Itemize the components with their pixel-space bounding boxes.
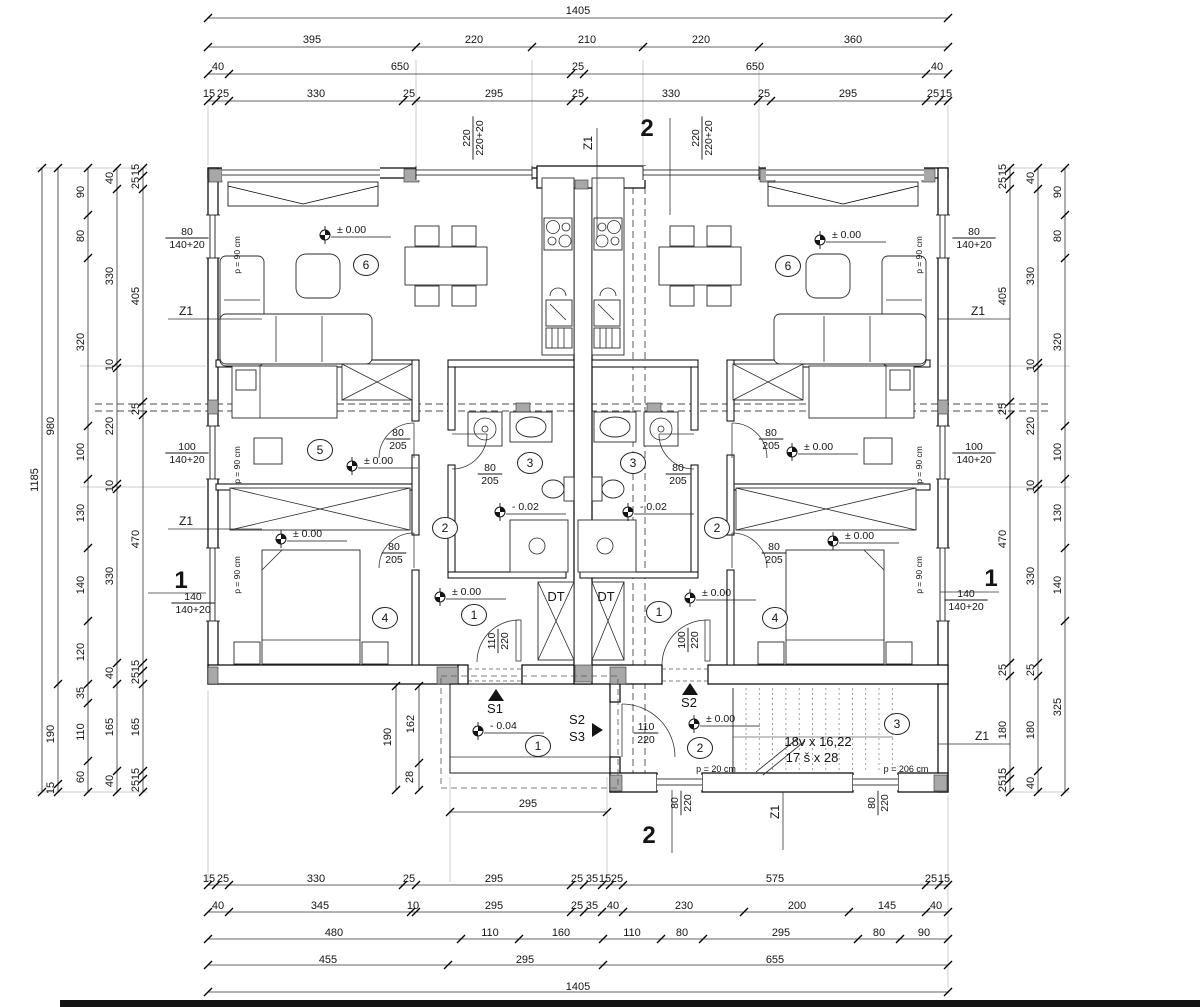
- bed-room4-right: [758, 550, 912, 664]
- bed-room5-right: [809, 366, 914, 418]
- dimension-value: 90: [1052, 186, 1064, 198]
- drawing-primitive: [657, 775, 702, 790]
- dimension-value: 25: [927, 88, 939, 100]
- wardrobe-room4-right: [736, 488, 916, 530]
- annotation-label: p = 90 cm: [914, 556, 924, 594]
- party-wall: [574, 168, 592, 684]
- dimension-value: 330: [104, 567, 116, 585]
- drawing-primitive: [685, 598, 690, 603]
- drawing-primitive: [580, 572, 698, 578]
- desk-room5-left: [254, 438, 282, 464]
- size-fraction-label: 80205: [762, 541, 787, 566]
- dimension-value: 40: [931, 61, 943, 73]
- drawing-primitive: [774, 314, 926, 364]
- dining-table-left: [405, 226, 487, 306]
- drawing-primitive: [689, 724, 694, 729]
- drawing-primitive: [768, 182, 918, 206]
- drawing-primitive: 205: [669, 475, 687, 487]
- dimension-value: 320: [75, 333, 87, 351]
- drawing-primitive: [705, 620, 710, 661]
- annotation-label: p = 90 cm: [914, 446, 924, 484]
- terrace-door-right: [766, 166, 924, 206]
- dimension-value: 60: [75, 771, 87, 783]
- drawing-primitive: ± 0.00: [832, 229, 861, 241]
- dimension-value: 325: [1052, 698, 1064, 716]
- drawing-primitive: [768, 186, 918, 204]
- dimension-value: 25: [130, 403, 142, 415]
- dimension-value: 980: [45, 417, 57, 435]
- window-left-100: [206, 426, 220, 479]
- drawing-primitive: [468, 412, 502, 446]
- drawing-primitive: 140+20: [956, 454, 991, 466]
- drawing-primitive: 2: [714, 521, 721, 535]
- dimension-value: 15: [130, 768, 142, 780]
- drawing-primitive: 80: [765, 427, 777, 439]
- dining-table-right: [659, 226, 741, 306]
- annotation-label: Z1: [971, 304, 985, 318]
- dimension-value: 25: [1025, 664, 1037, 676]
- size-fraction-label: 80205: [386, 427, 411, 452]
- drawing-primitive: [936, 215, 950, 258]
- coffee-table-left: [296, 254, 340, 298]
- drawing-primitive: 4: [382, 611, 389, 625]
- dimension-value: 160: [552, 927, 570, 939]
- drawing-primitive: [938, 168, 948, 792]
- drawing-primitive: [806, 254, 850, 298]
- drawing-primitive: 6: [785, 259, 792, 273]
- dimension-value: 10: [104, 480, 116, 492]
- dimension-value: 405: [130, 287, 142, 305]
- dimension-value: 90: [918, 927, 930, 939]
- drawing-primitive: [833, 536, 838, 541]
- size-fraction-label: 80140+20: [165, 226, 208, 251]
- dimension-value: 28: [404, 771, 416, 783]
- annotation-label: S1: [487, 701, 503, 716]
- room-number-marker: 4: [373, 608, 398, 629]
- dimension-value: 165: [130, 718, 142, 736]
- dimension-value: 25: [572, 61, 584, 73]
- dimension-value: 1405: [566, 5, 590, 17]
- room-number-marker: 1: [462, 605, 487, 626]
- drawing-primitive: ± 0.00: [804, 441, 833, 453]
- drawing-primitive: [362, 642, 388, 664]
- size-fraction-label: 100140+20: [952, 441, 995, 466]
- dimension-value: 220: [465, 34, 483, 46]
- dimension-value: 40: [104, 667, 116, 679]
- level-marker: ± 0.00: [815, 229, 886, 249]
- drawing-primitive: ± 0.00: [337, 224, 366, 236]
- door-room4-right: [732, 533, 767, 568]
- drawing-primitive: 6: [363, 258, 370, 272]
- porch-left: [441, 676, 618, 788]
- annotation-label: DT: [597, 589, 614, 604]
- drawing-primitive: [938, 400, 948, 414]
- drawing-primitive: 80: [866, 797, 878, 809]
- dimension-value: 10: [1025, 359, 1037, 371]
- dimension-value: 470: [997, 530, 1009, 548]
- dimension-value: 35: [75, 687, 87, 699]
- dimension-value: 80: [676, 927, 688, 939]
- drawing-primitive: [222, 166, 380, 180]
- dimension-value: 650: [391, 61, 409, 73]
- drawing-primitive: [644, 412, 678, 446]
- drawing-primitive: [643, 166, 759, 180]
- drawing-primitive: [853, 775, 898, 790]
- size-fraction-label: 100140+20: [165, 441, 208, 466]
- dimension-value: 90: [75, 186, 87, 198]
- drawing-primitive: [448, 572, 566, 578]
- dimension-value: 15: [997, 768, 1009, 780]
- drawing-primitive: [670, 286, 694, 306]
- drawing-primitive: [578, 520, 636, 572]
- bed-room5-left: [232, 366, 337, 418]
- drawing-primitive: [707, 286, 731, 306]
- room-number-marker: 3: [885, 714, 910, 735]
- drawing-primitive: [452, 286, 476, 306]
- level-marker: ± 0.00: [276, 528, 347, 548]
- dimension-value: 130: [75, 504, 87, 522]
- dimension-value: 110: [481, 927, 499, 939]
- dimension-value: 15: [203, 873, 215, 885]
- drawing-primitive: [610, 775, 622, 791]
- drawing-primitive: [473, 731, 478, 736]
- bathroom-right: [578, 412, 678, 572]
- dimension-value: 110: [623, 927, 641, 939]
- dimension-value: 650: [746, 61, 764, 73]
- dimension-value: 15: [997, 164, 1009, 176]
- dimension-value: 15: [203, 88, 215, 100]
- annotation-label: p = 206 cm: [884, 764, 929, 774]
- drawing-primitive: [452, 226, 476, 246]
- dimension-value: 40: [104, 775, 116, 787]
- annotation-label: p = 20 cm: [696, 764, 736, 774]
- drawing-primitive: [208, 400, 218, 414]
- entrance-arrow: [592, 723, 603, 737]
- dimension-value: 25: [572, 88, 584, 100]
- drawing-primitive: [448, 367, 455, 430]
- dimension-value: 25: [997, 780, 1009, 792]
- drawing-primitive: - 0.02: [640, 501, 667, 513]
- size-fraction-label: 80205: [759, 427, 784, 452]
- drawing-primitive: [437, 667, 458, 684]
- dimension-value: 100: [1052, 443, 1064, 461]
- room-number-marker: 6: [354, 255, 379, 276]
- drawing-primitive: 80: [392, 427, 404, 439]
- drawing-primitive: [594, 328, 620, 348]
- dimension-value: 25: [571, 900, 583, 912]
- dimension-value: 330: [307, 873, 325, 885]
- drawing-primitive: - 0.02: [512, 501, 539, 513]
- drawing-primitive: 2: [442, 521, 449, 535]
- dimension-value: 25: [997, 664, 1009, 676]
- size-fraction-label: 80220: [669, 791, 694, 816]
- level-marker: ± 0.00: [689, 713, 760, 733]
- dimension-value: 25: [217, 88, 229, 100]
- room-number-marker: 3: [518, 453, 543, 474]
- size-fraction-label: 110220: [634, 721, 659, 746]
- dimension-value: 80: [873, 927, 885, 939]
- drawing-primitive: [254, 438, 282, 464]
- dimension-value: 25: [611, 873, 623, 885]
- drawing-primitive: [890, 370, 910, 390]
- drawing-primitive: [936, 426, 950, 479]
- drawing-primitive: [691, 465, 698, 572]
- dimension-value: 345: [311, 900, 329, 912]
- dimension-value: 145: [878, 900, 896, 912]
- annotation-label: p = 90 cm: [232, 236, 242, 274]
- drawing-primitive: [206, 426, 220, 479]
- drawing-primitive: [516, 417, 546, 437]
- drawing-primitive: [815, 240, 820, 245]
- drawing-primitive: [510, 520, 568, 572]
- dimension-value: 25: [130, 780, 142, 792]
- drawing-primitive: ± 0.00: [452, 586, 481, 598]
- drawing-primitive: - 0.04: [490, 720, 517, 732]
- room-number-marker: 1: [526, 736, 551, 757]
- drawing-primitive: [325, 230, 330, 235]
- dimension-value: 25: [403, 88, 415, 100]
- room-number-marker: 2: [688, 738, 713, 759]
- dimension-value: 25: [403, 873, 415, 885]
- drawing-primitive: ± 0.00: [364, 455, 393, 467]
- drawing-primitive: 220: [690, 129, 702, 147]
- annotation-label: p = 90 cm: [232, 556, 242, 594]
- dimension-value: 130: [1052, 504, 1064, 522]
- drawing-primitive: [478, 726, 483, 731]
- dimension-value: 40: [1025, 777, 1037, 789]
- dimension-value: 40: [212, 900, 224, 912]
- dimension-value: 330: [662, 88, 680, 100]
- drawing-primitive: 80: [968, 226, 980, 238]
- dimension-value: 295: [485, 873, 503, 885]
- size-fraction-label: 80205: [478, 462, 503, 487]
- kitchen-left: [542, 178, 574, 355]
- drawing-primitive: [670, 226, 694, 246]
- floor-plan-drawing: 1405395220210220360406502565040152533025…: [0, 0, 1200, 1007]
- drawing-primitive: 2: [697, 741, 704, 755]
- drawing-primitive: ± 0.00: [845, 530, 874, 542]
- drawing-primitive: [691, 367, 698, 430]
- level-marker: ± 0.00: [320, 224, 391, 244]
- drawing-primitive: [209, 169, 222, 182]
- window-right-80: [936, 215, 950, 258]
- size-fraction-label: 80205: [382, 541, 407, 566]
- drawing-primitive: 100: [676, 631, 688, 649]
- drawing-primitive: [828, 541, 833, 546]
- drawing-primitive: [347, 466, 352, 471]
- dimension-value: 15: [599, 873, 611, 885]
- drawing-primitive: [220, 314, 372, 364]
- annotation-label: 2: [640, 115, 653, 142]
- annotation-label: 17 š x 28: [786, 750, 839, 765]
- dimension-value: 180: [997, 721, 1009, 739]
- dimension-value: 40: [212, 61, 224, 73]
- dimension-value: 330: [1025, 267, 1037, 285]
- drawing-primitive: [281, 534, 286, 539]
- dimension-value: 220: [1025, 417, 1037, 435]
- dimension-value: 190: [382, 728, 394, 746]
- drawing-primitive: [276, 539, 281, 544]
- drawing-primitive: [707, 226, 731, 246]
- desk-room5-right: [864, 438, 892, 464]
- dimension-value: 575: [766, 873, 784, 885]
- drawing-primitive: ± 0.00: [702, 587, 731, 599]
- dimension-value: 190: [45, 725, 57, 743]
- drawing-primitive: [732, 533, 767, 568]
- drawing-primitive: [405, 247, 487, 285]
- drawing-primitive: 205: [481, 475, 499, 487]
- dimension-value: 330: [1025, 567, 1037, 585]
- drawing-primitive: [602, 480, 624, 498]
- drawing-primitive: ± 0.00: [293, 528, 322, 540]
- level-marker: ± 0.00: [685, 587, 756, 607]
- wardrobe-room4-left: [230, 488, 410, 530]
- drawing-primitive: [564, 477, 574, 501]
- drawing-primitive: [694, 719, 699, 724]
- size-fraction-label: 80205: [666, 462, 691, 487]
- dimension-value: 110: [75, 723, 87, 741]
- drawing-primitive: [441, 676, 618, 788]
- drawing-primitive: 4: [772, 611, 779, 625]
- drawing-primitive: [208, 667, 218, 684]
- annotation-label: S3: [569, 729, 585, 744]
- dimension-value: 165: [104, 718, 116, 736]
- dimension-value: 455: [319, 954, 337, 966]
- room-number-marker: 2: [705, 518, 730, 539]
- drawing-primitive: [435, 597, 440, 602]
- bed-room4-left: [234, 550, 388, 664]
- drawing-primitive: 140+20: [169, 454, 204, 466]
- room-number-marker: 2: [433, 518, 458, 539]
- drawing-primitive: [786, 550, 884, 664]
- dimension-value: 15: [130, 164, 142, 176]
- dimension-value: 100: [75, 443, 87, 461]
- dimension-value: 1405: [566, 981, 590, 993]
- room-number-marker: 4: [763, 608, 788, 629]
- dimension-value: 395: [303, 34, 321, 46]
- dimension-value: 210: [578, 34, 596, 46]
- drawing-primitive: 110: [638, 721, 655, 733]
- drawing-primitive: 220: [461, 129, 473, 147]
- drawing-primitive: [448, 360, 574, 367]
- drawing-primitive: [546, 328, 572, 348]
- dimension-value: 295: [516, 954, 534, 966]
- drawing-primitive: [708, 665, 948, 684]
- drawing-primitive: [690, 593, 695, 598]
- drawing-primitive: 205: [389, 440, 407, 452]
- drawing-primitive: [542, 480, 564, 498]
- window-right-100: [936, 426, 950, 479]
- wardrobe-room5-left: [342, 364, 412, 400]
- annotation-label: Z1: [179, 514, 193, 528]
- drawing-primitive: [864, 438, 892, 464]
- dimension-value: 295: [772, 927, 790, 939]
- dimension-value: 40: [607, 900, 619, 912]
- dimension-value: 405: [997, 287, 1009, 305]
- dimension-value: 25: [217, 873, 229, 885]
- drawing-primitive: [415, 286, 439, 306]
- drawing-primitive: 100: [965, 441, 983, 453]
- dimension-value: 140: [75, 576, 87, 594]
- dimension-value: 295: [485, 88, 503, 100]
- level-marker: ± 0.00: [787, 441, 858, 461]
- annotation-label: DT: [547, 589, 564, 604]
- drawing-primitive: [440, 592, 445, 597]
- annotation-label: 1: [174, 567, 187, 594]
- dimension-value: 360: [844, 34, 862, 46]
- drawing-primitive: 220: [879, 794, 891, 812]
- drawing-primitive: 80: [768, 541, 780, 553]
- drawing-primitive: [228, 182, 378, 206]
- drawing-primitive: 220: [637, 734, 655, 746]
- window-stairs-left: [657, 775, 702, 790]
- dimension-value: 330: [307, 88, 325, 100]
- dimension-value: 40: [104, 172, 116, 184]
- drawing-primitive: 205: [385, 554, 403, 566]
- annotation-label: 1: [984, 565, 997, 592]
- dimension-value: 80: [1052, 230, 1064, 242]
- drawing-primitive: [412, 570, 419, 665]
- drawing-primitive: [592, 477, 602, 501]
- drawing-primitive: 205: [765, 554, 783, 566]
- dimension-value: 25: [130, 177, 142, 189]
- drawing-primitive: [610, 684, 620, 702]
- drawing-primitive: [228, 186, 378, 204]
- annotation-label: S2: [569, 712, 585, 727]
- drawing-primitive: [412, 360, 419, 421]
- level-marker: ± 0.00: [435, 586, 506, 606]
- drawing-primitive: [416, 166, 532, 180]
- drawing-primitive: [702, 773, 853, 792]
- drawing-primitive: [600, 417, 630, 437]
- dimension-value: 330: [104, 267, 116, 285]
- drawing-primitive: [296, 254, 340, 298]
- drawing-primitive: [320, 235, 325, 240]
- drawing-primitive: [886, 642, 912, 664]
- drawing-primitive: [628, 507, 633, 512]
- drawing-primitive: 110: [486, 632, 498, 649]
- drawing-primitive: [412, 455, 419, 535]
- drawing-primitive: 220+20: [474, 120, 486, 155]
- drawing-primitive: [415, 226, 439, 246]
- drawing-primitive: [352, 461, 357, 466]
- drawing-primitive: [458, 665, 468, 684]
- drawing-primitive: [758, 642, 784, 664]
- drawing-primitive: 5: [317, 443, 324, 457]
- annotation-label: Z1: [581, 136, 595, 150]
- window-left-80: [206, 215, 220, 258]
- drawing-primitive: [787, 452, 792, 457]
- drawing-primitive: 205: [762, 440, 780, 452]
- coffee-table-right: [806, 254, 850, 298]
- drawing-primitive: [516, 620, 521, 661]
- dimension-value: 295: [485, 900, 503, 912]
- drawing-primitive: 1: [471, 608, 478, 622]
- window-top-kitchen-left: [416, 166, 532, 180]
- level-marker: - 0.02: [623, 501, 694, 521]
- size-fraction-label: 220220+20: [690, 116, 715, 159]
- room-number-marker: 3: [621, 453, 646, 474]
- size-fraction-label: 100220: [676, 628, 701, 653]
- wardrobe-room5-right: [733, 364, 803, 400]
- dimension-value: 80: [75, 230, 87, 242]
- dimension-value: 295: [839, 88, 857, 100]
- drawing-primitive: 220: [689, 631, 701, 649]
- dimension-value: 25: [997, 403, 1009, 415]
- drawing-primitive: 80: [388, 541, 400, 553]
- dimension-value: 200: [788, 900, 806, 912]
- drawing-primitive: 140+20: [948, 601, 983, 613]
